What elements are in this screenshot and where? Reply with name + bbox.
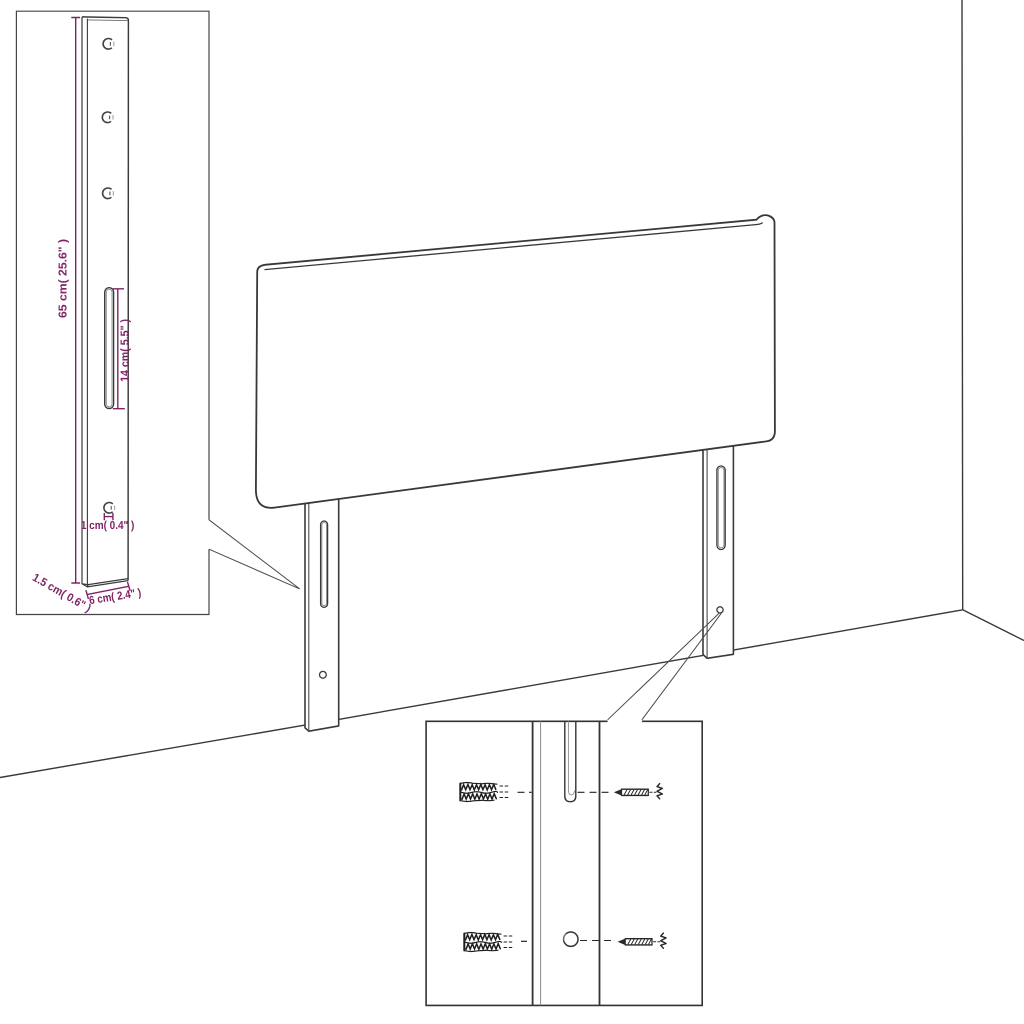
svg-text:1 cm( 0.4" ): 1 cm( 0.4" ): [81, 520, 135, 532]
svg-text:14 cm( 5.5" ): 14 cm( 5.5" ): [119, 319, 131, 382]
svg-text:65 cm( 25.6" ): 65 cm( 25.6" ): [58, 239, 70, 318]
